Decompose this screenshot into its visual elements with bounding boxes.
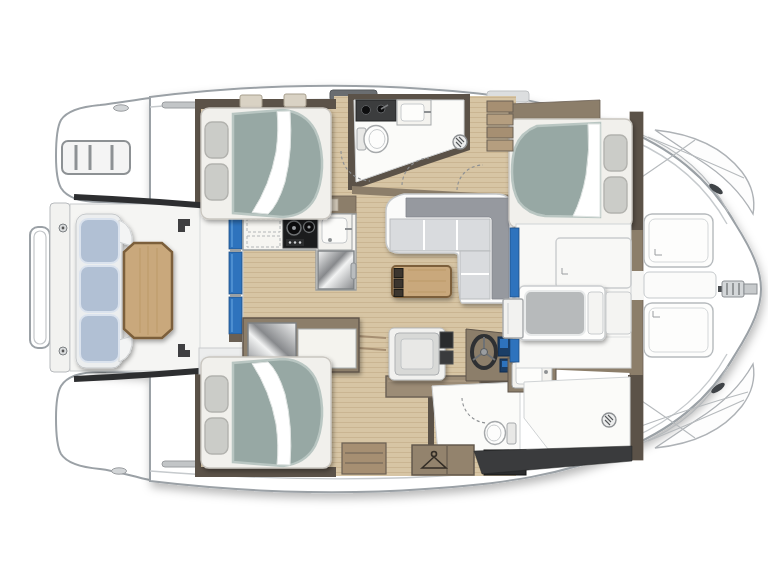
deck-cleat-top bbox=[114, 105, 129, 111]
cabin-c-berth bbox=[509, 119, 632, 227]
cabin-a-berth bbox=[201, 108, 331, 219]
pillow-a1 bbox=[205, 122, 228, 158]
toilet-top bbox=[357, 126, 388, 153]
fwd-door bbox=[503, 299, 523, 338]
shower-bottom bbox=[524, 377, 630, 449]
cabin-a-locker-top-2 bbox=[284, 94, 306, 107]
pillow-b2 bbox=[205, 418, 228, 454]
nav-instrument-2 bbox=[440, 351, 453, 364]
wardrobe bbox=[412, 445, 474, 475]
fwd-panel-2 bbox=[588, 292, 603, 334]
pillow-b1 bbox=[205, 376, 228, 412]
shower-drain-top bbox=[453, 135, 467, 149]
toilet-bottom bbox=[485, 422, 517, 445]
aft-cockpit bbox=[59, 197, 245, 379]
front-window-top bbox=[510, 228, 519, 297]
transom-platform-bottom bbox=[56, 372, 150, 480]
bench-cushion-3 bbox=[80, 315, 119, 362]
shower-floor bbox=[524, 377, 630, 449]
deck-handle-top bbox=[162, 102, 200, 108]
deck-locker-middle bbox=[644, 272, 716, 298]
cabin-b-berth bbox=[201, 357, 331, 468]
deck-hatch-bottom bbox=[644, 303, 713, 357]
cockpit-table bbox=[124, 243, 172, 338]
fridge-handle bbox=[351, 263, 356, 279]
table-cushion-3 bbox=[394, 290, 403, 297]
stove bbox=[283, 216, 318, 248]
nav-instrument-1 bbox=[440, 332, 453, 348]
salon-table bbox=[392, 266, 451, 297]
table-cushion-1 bbox=[394, 269, 403, 278]
washbasin-top bbox=[397, 100, 431, 125]
sofa-seat-horizontal bbox=[390, 219, 490, 251]
fwd-seat-cushion bbox=[525, 291, 585, 335]
stern-rail bbox=[30, 227, 50, 348]
boarding-ladder bbox=[62, 141, 130, 174]
deck-handle-bottom bbox=[162, 461, 200, 467]
foredeck-passage-gap bbox=[631, 271, 644, 300]
catamaran-floor-plan: Catamaran yacht deck and accommodation f… bbox=[0, 0, 768, 576]
bench-cushion-1 bbox=[80, 219, 119, 263]
stern-rail-inner bbox=[34, 231, 46, 344]
table-cushion-2 bbox=[394, 279, 403, 288]
pillow-a2 bbox=[205, 164, 228, 200]
front-window-bottom bbox=[510, 339, 519, 362]
dresser bbox=[342, 443, 386, 474]
deck-hatch-top bbox=[644, 214, 713, 267]
refrigerator bbox=[318, 251, 356, 289]
pillow-c1 bbox=[604, 135, 627, 171]
cabin-a-locker-top-1 bbox=[240, 95, 262, 108]
bench-cushion-2 bbox=[80, 266, 119, 312]
forward-cockpit bbox=[503, 224, 631, 368]
head-top-counter bbox=[356, 100, 396, 121]
salon-sliding-door bbox=[229, 208, 242, 342]
deck-cleat-bottom bbox=[112, 468, 127, 474]
fwd-panel-3 bbox=[606, 292, 631, 334]
pillow-c2 bbox=[604, 177, 627, 213]
floor-plan-svg: Catamaran yacht deck and accommodation f… bbox=[0, 0, 768, 576]
nav-chair bbox=[389, 328, 445, 380]
